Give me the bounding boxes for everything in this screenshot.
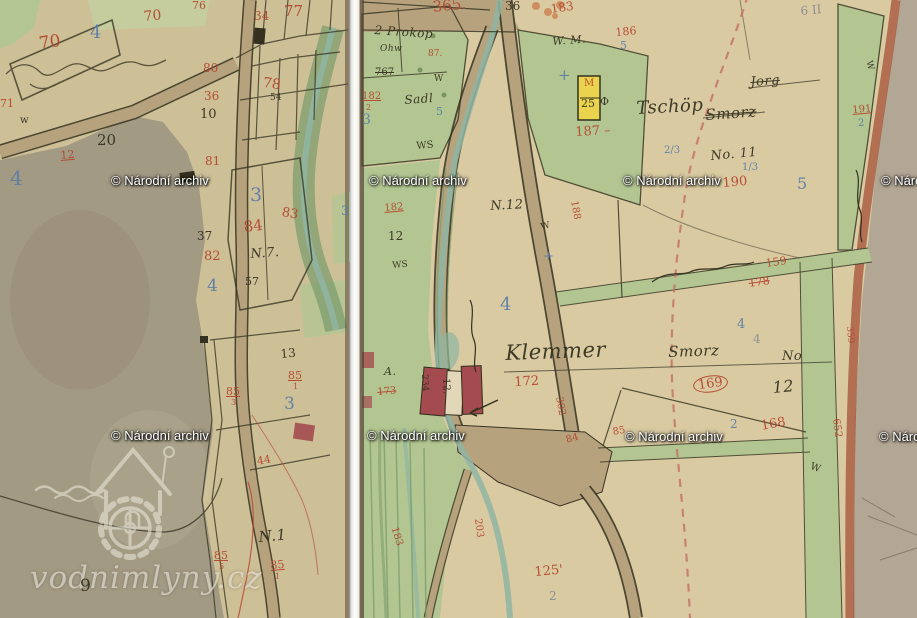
- archive-watermark: © Národní archiv: [881, 173, 917, 188]
- map-label: No. 11: [710, 146, 758, 163]
- map-label: 9: [80, 578, 91, 595]
- map-label: 6 II: [800, 3, 822, 17]
- map-label: 4: [10, 168, 23, 188]
- map-scan-left[interactable]: [0, 0, 350, 618]
- map-label: N.1: [258, 528, 287, 545]
- map-label: 5: [436, 106, 443, 117]
- map-label: 12: [772, 378, 795, 396]
- map-label: 186: [615, 25, 637, 38]
- map-label: 3: [284, 396, 295, 413]
- map-label: N.12: [490, 198, 524, 213]
- map-label: 182: [362, 92, 381, 102]
- map-label: 54: [270, 94, 281, 103]
- map-label: 36: [204, 90, 219, 102]
- map-label: 36: [505, 0, 520, 12]
- map-label: 172: [514, 375, 539, 389]
- map-label: Smorz: [705, 104, 757, 123]
- map-label: 159: [765, 255, 787, 269]
- map-label: 71: [0, 98, 14, 109]
- map-label: 81: [205, 155, 220, 167]
- map-label: 44: [256, 454, 272, 467]
- map-label: 203: [472, 518, 484, 538]
- map-label: 652: [830, 418, 843, 438]
- map-label: 125': [534, 564, 563, 579]
- map-label: 2/3: [664, 146, 680, 156]
- map-label: Klemmer: [505, 339, 606, 363]
- map-label: 3: [341, 205, 349, 218]
- map-label: No: [782, 350, 802, 363]
- map-label: 12.: [440, 378, 451, 394]
- map-label: 5: [620, 40, 627, 51]
- archive-watermark: © Národní archiv: [623, 173, 721, 188]
- map-label: 3: [231, 399, 236, 407]
- map-label: Sadl: [404, 92, 434, 106]
- map-label: 13: [280, 347, 296, 360]
- map-label: 359: [844, 326, 854, 344]
- site-watermark: vodnimlyny.cz: [30, 560, 263, 596]
- map-label: 191: [852, 104, 872, 116]
- map-viewer: vodnimlyny.cz 704707634778078543610w7120…: [0, 0, 917, 618]
- map-label: 2: [366, 104, 371, 112]
- map-label: Jorg: [750, 74, 780, 89]
- map-label: 1: [293, 383, 298, 391]
- map-label: 183: [550, 0, 574, 15]
- map-label: 10: [200, 108, 217, 121]
- map-label: 87.: [428, 50, 442, 59]
- map-label: 365.: [432, 0, 467, 15]
- map-label: 70: [38, 33, 62, 53]
- map-label: 2: [730, 418, 738, 430]
- map-label: M: [584, 79, 594, 89]
- map-label: N.7.: [250, 246, 280, 261]
- map-label: 767: [375, 68, 394, 78]
- map-label: w: [20, 116, 29, 126]
- map-label: 3: [362, 113, 371, 127]
- map-label: 302: [553, 396, 566, 417]
- map-label: 2: [549, 590, 557, 602]
- map-label: 173: [377, 386, 397, 398]
- map-label: 25: [581, 98, 595, 109]
- archive-watermark: © Národní archiv: [369, 173, 467, 188]
- map-label: 82: [204, 250, 221, 263]
- map-label: W: [434, 75, 443, 84]
- map-label: 83: [281, 206, 300, 222]
- map-label: W. M.: [552, 34, 586, 47]
- map-label: 12: [388, 230, 403, 242]
- archive-watermark: © Národní archiv: [625, 429, 723, 444]
- map-label: Φ: [600, 96, 609, 107]
- map-label: 4: [753, 333, 761, 345]
- map-label: 5: [219, 563, 224, 571]
- map-label: 4: [90, 24, 101, 42]
- map-label: 37: [197, 230, 212, 242]
- archive-watermark: © Národní archiv: [111, 173, 209, 188]
- map-label: A.: [384, 366, 396, 377]
- map-label: Smorz: [668, 343, 720, 360]
- map-label: 78: [262, 76, 282, 92]
- map-label: 178: [748, 275, 770, 289]
- map-label: 80: [203, 62, 218, 74]
- map-label: 3: [250, 186, 262, 205]
- map-label: 76: [192, 0, 206, 11]
- map-label: 84: [243, 218, 264, 235]
- map-label: 182: [384, 202, 404, 214]
- map-label: 234: [419, 374, 429, 392]
- map-label: 4: [737, 318, 745, 331]
- map-label: 20: [97, 133, 116, 148]
- map-scan-right[interactable]: [360, 0, 917, 618]
- map-label: 85: [226, 386, 240, 397]
- map-label: 2: [858, 119, 864, 129]
- map-label: 4: [207, 278, 218, 295]
- map-label: 188: [568, 200, 581, 221]
- map-label: 12: [60, 149, 75, 161]
- archive-watermark: © Národní archiv: [879, 429, 917, 444]
- map-label: 77: [284, 4, 303, 19]
- map-label: Tschöp: [636, 96, 704, 117]
- map-label: 5: [797, 176, 807, 192]
- archive-watermark: © Národní archiv: [111, 428, 209, 443]
- map-label: 190: [722, 175, 748, 190]
- map-label: 85: [214, 550, 228, 561]
- archive-watermark: © Národní archiv: [367, 428, 465, 443]
- map-label: 2 Prokop: [374, 24, 433, 40]
- map-label: WS: [392, 261, 408, 271]
- map-label: 57: [245, 276, 259, 287]
- map-label: WS: [416, 141, 434, 152]
- map-label: 1: [275, 573, 280, 581]
- map-label: +: [543, 250, 554, 263]
- map-label: 1/3: [742, 163, 758, 173]
- map-label: +: [558, 68, 571, 83]
- map-label: 187 –: [575, 124, 611, 139]
- map-label: 4: [500, 296, 511, 314]
- map-label: 85: [288, 370, 302, 381]
- map-label: 85: [270, 559, 285, 571]
- map-label: 70: [143, 8, 162, 24]
- map-label: 34: [254, 10, 269, 22]
- map-label: Ohw: [380, 45, 402, 54]
